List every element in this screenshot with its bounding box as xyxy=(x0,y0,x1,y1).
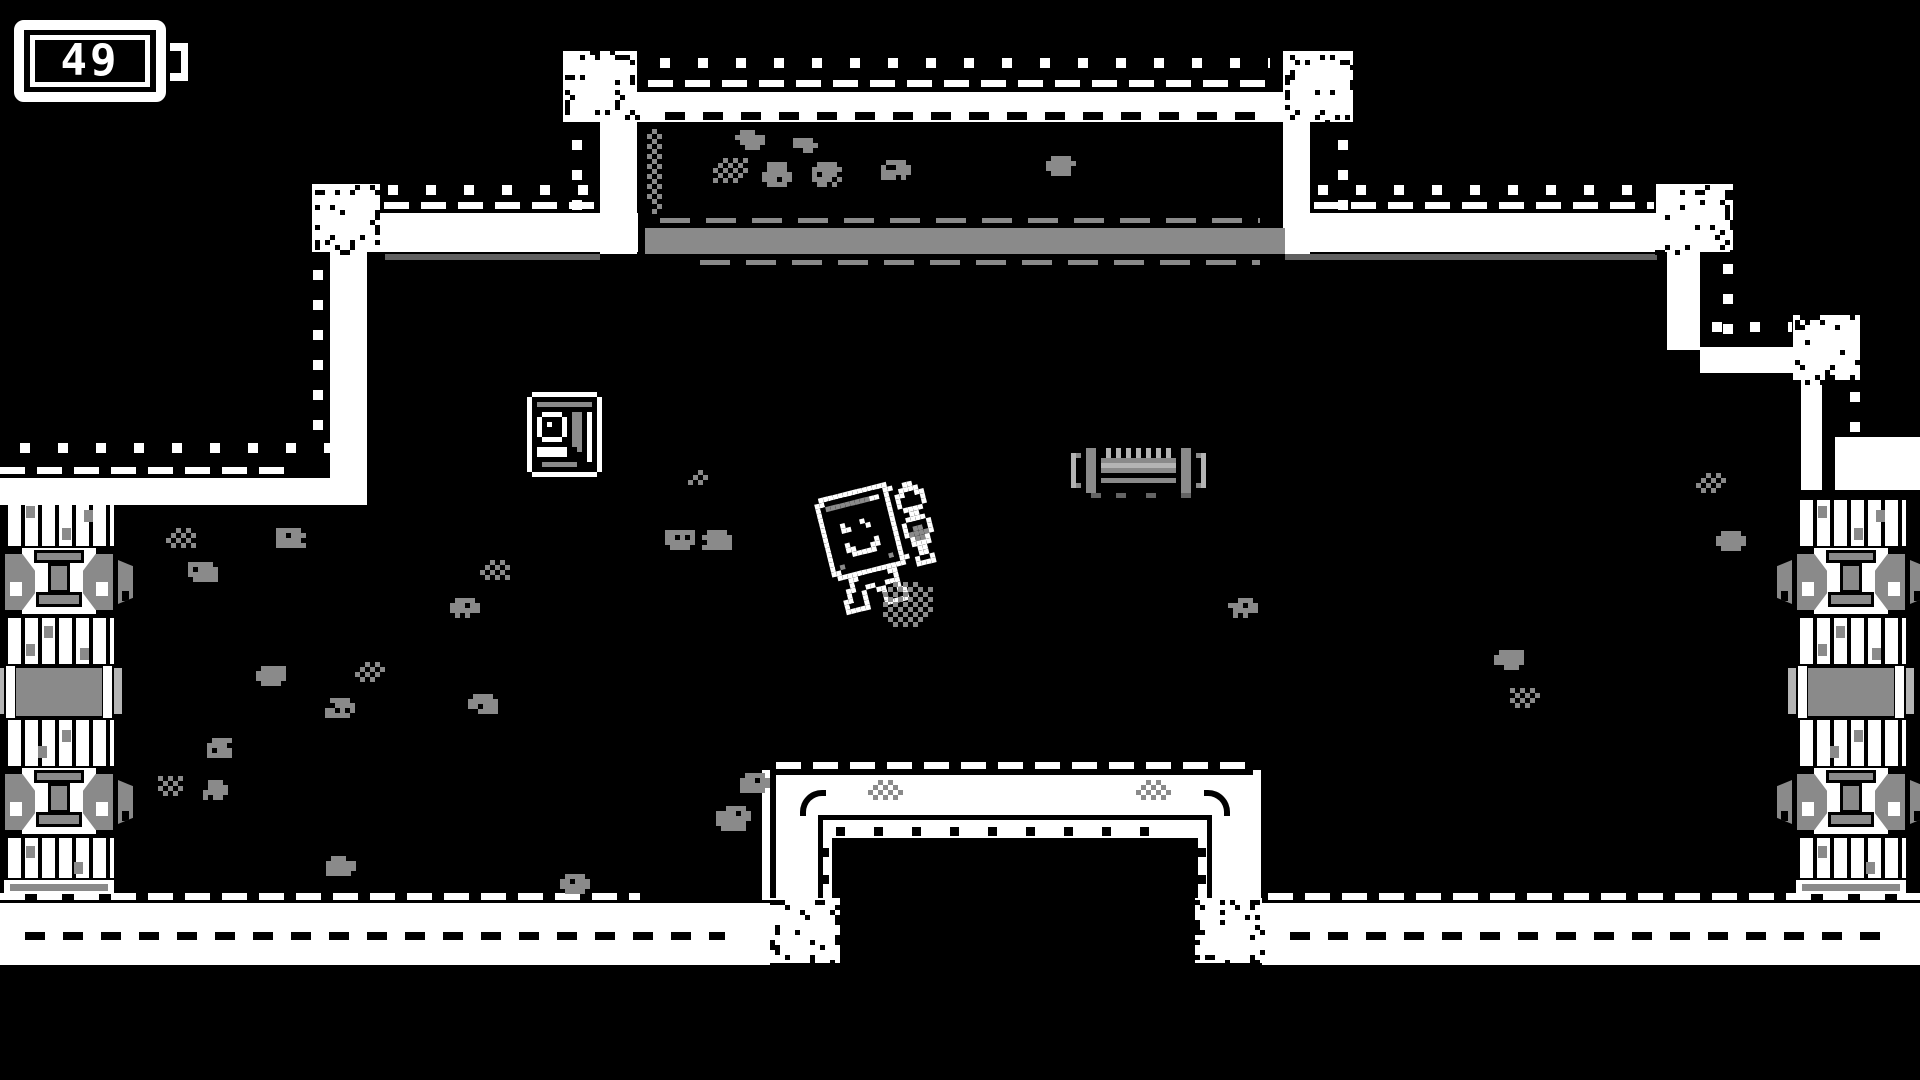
battery-counter: 49 xyxy=(14,20,200,102)
texture-overlay xyxy=(0,0,1920,1080)
battery-value: 49 xyxy=(30,35,150,87)
game-stage[interactable]: 49 xyxy=(0,0,1920,1080)
